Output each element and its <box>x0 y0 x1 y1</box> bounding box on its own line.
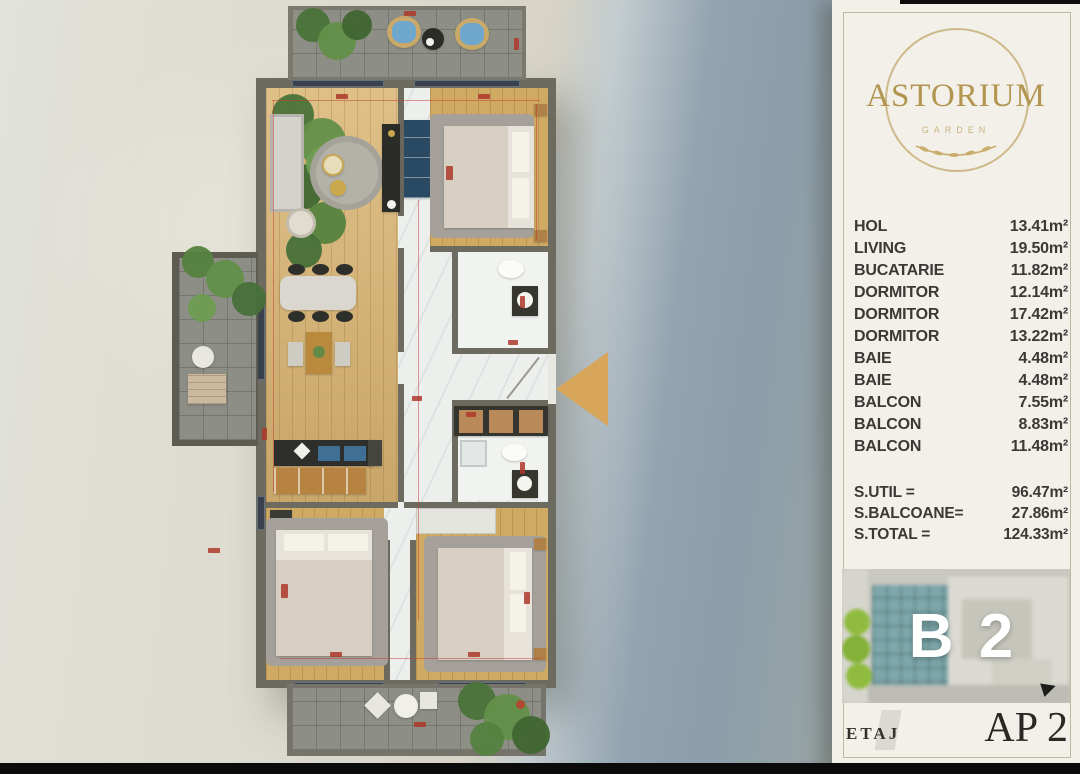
room-label: LIVING <box>854 238 906 260</box>
room-row: DORMITOR17.42m² <box>854 304 1068 326</box>
dimension-label <box>262 428 267 440</box>
room-row: BUCATARIE11.82m² <box>854 260 1068 282</box>
room-label: DORMITOR <box>854 304 939 326</box>
closet-box <box>489 410 513 433</box>
site-plan-thumbnail: B 2 <box>842 569 1070 703</box>
sofa <box>270 114 304 212</box>
room-row: DORMITOR12.14m² <box>854 282 1068 304</box>
kitchen-cabinet-front <box>318 446 340 461</box>
chair-cushion <box>392 21 416 43</box>
room-row: BAIE4.48m² <box>854 370 1068 392</box>
dining-chair <box>312 264 329 275</box>
dimension-label <box>468 652 480 657</box>
total-value: 124.33m² <box>1003 524 1068 545</box>
dining-chair <box>312 311 329 322</box>
dining-chair <box>288 264 305 275</box>
dimension-label <box>336 94 348 99</box>
closet-band <box>416 508 496 534</box>
tv-unit <box>382 124 400 212</box>
room-label: HOL <box>854 216 887 238</box>
kitchen-cabinets <box>274 468 366 494</box>
room-label: BUCATARIE <box>854 260 944 282</box>
pillow <box>512 178 529 218</box>
kitchen-cabinet-front <box>344 446 366 461</box>
total-row: S.UTIL =96.47m² <box>854 482 1068 503</box>
dimension-label <box>524 592 530 604</box>
totals-list: S.UTIL =96.47m² S.BALCOANE=27.86m² S.TOT… <box>854 482 1068 545</box>
room-row: HOL13.41m² <box>854 216 1068 238</box>
dining-chair <box>288 311 305 322</box>
apartment-label: AP 2 <box>984 704 1068 752</box>
balcony-chair <box>420 692 437 709</box>
floorplan-photo-background <box>0 0 832 774</box>
interior-wall <box>398 384 404 502</box>
total-row: S.TOTAL =124.33m² <box>854 524 1068 545</box>
pillow <box>512 132 529 172</box>
room-area: 12.14m² <box>1010 282 1068 304</box>
dimension-line <box>280 658 542 659</box>
closet-box <box>519 410 543 433</box>
tv-unit-decor <box>388 130 395 137</box>
shower <box>460 440 487 467</box>
dimension-label <box>446 166 453 180</box>
dimension-label <box>281 584 288 598</box>
total-label: S.UTIL = <box>854 482 915 503</box>
total-label: S.TOTAL = <box>854 524 930 545</box>
dimension-line <box>418 200 419 620</box>
dimension-label <box>208 548 220 553</box>
room-area: 8.83m² <box>1019 414 1069 436</box>
chair-cushion <box>460 23 484 45</box>
bed-duvet <box>438 548 504 660</box>
total-value: 96.47m² <box>1012 482 1068 503</box>
dimension-label <box>520 462 525 474</box>
lounge-chair <box>188 374 226 404</box>
hall-wardrobe <box>404 120 430 198</box>
interior-wall <box>266 502 398 508</box>
room-label: BALCON <box>854 436 921 458</box>
kitchen-fridge <box>368 440 382 466</box>
kitchen-chair <box>335 342 350 366</box>
entrance-arrow-icon <box>556 352 608 426</box>
dining-chair <box>336 264 353 275</box>
room-row: BALCON11.48m² <box>854 436 1068 458</box>
pillow <box>510 552 526 590</box>
dimension-line <box>536 104 537 240</box>
room-area: 4.48m² <box>1019 370 1069 392</box>
dimension-label <box>330 652 342 657</box>
interior-wall <box>398 248 404 352</box>
floor-label: ETAJ <box>846 724 900 744</box>
unit-code: B 2 <box>842 569 1070 703</box>
room-label: BAIE <box>854 370 891 392</box>
table-plant <box>313 346 325 358</box>
room-area: 19.50m² <box>1010 238 1068 260</box>
pillow <box>328 534 368 551</box>
tree <box>470 722 504 756</box>
bottom-letterbox-bar <box>0 763 1080 774</box>
room-row: DORMITOR13.22m² <box>854 326 1068 348</box>
dimension-line <box>272 100 540 101</box>
room-row: LIVING19.50m² <box>854 238 1068 260</box>
room-label: DORMITOR <box>854 282 939 304</box>
room-area: 17.42m² <box>1010 304 1068 326</box>
screenshot-root: ASTORIUM GARDEN HOL13.41m² LIVING19.50m²… <box>0 0 1080 774</box>
dimension-label <box>514 38 519 50</box>
logo-title: ASTORIUM <box>832 78 1080 115</box>
dimension-label <box>412 396 422 401</box>
info-panel: ASTORIUM GARDEN HOL13.41m² LIVING19.50m²… <box>832 0 1080 774</box>
sink <box>517 476 532 491</box>
room-label: DORMITOR <box>854 326 939 348</box>
room-label: BALCON <box>854 414 921 436</box>
room-area: 13.22m² <box>1010 326 1068 348</box>
coffee-table <box>322 154 344 176</box>
room-area: 11.48m² <box>1011 436 1068 458</box>
top-letterbox-bar <box>900 0 1080 4</box>
room-area: 13.41m² <box>1010 216 1068 238</box>
dining-chair <box>336 311 353 322</box>
tv-unit-lamp <box>387 200 396 209</box>
plant <box>188 294 216 322</box>
toilet <box>498 260 524 278</box>
gold-stool <box>330 180 346 196</box>
total-row: S.BALCOANE=27.86m² <box>854 503 1068 524</box>
room-area: 4.48m² <box>1019 348 1069 370</box>
total-value: 27.86m² <box>1012 503 1068 524</box>
room-area: 11.82m² <box>1011 260 1068 282</box>
dimension-label <box>404 11 416 16</box>
interior-wall <box>410 540 416 680</box>
room-label: BALCON <box>854 392 921 414</box>
dimension-label <box>520 296 525 308</box>
bed-duvet <box>444 126 508 228</box>
window <box>414 80 520 87</box>
logo-subtitle: GARDEN <box>832 125 1080 135</box>
flower <box>516 700 525 709</box>
dimension-label <box>466 412 476 417</box>
dimension-label <box>508 340 518 345</box>
table-decor <box>426 38 434 46</box>
toilet <box>502 444 527 461</box>
round-rug <box>310 136 384 210</box>
balcony-side-table <box>192 346 214 368</box>
laurel-icon <box>908 138 1004 164</box>
room-row: BALCON8.83m² <box>854 414 1068 436</box>
nightstand <box>534 538 546 550</box>
dining-table <box>280 276 356 310</box>
window <box>257 496 265 530</box>
room-area: 7.55m² <box>1019 392 1069 414</box>
window <box>292 80 384 87</box>
room-label: BAIE <box>854 348 891 370</box>
total-label: S.BALCOANE= <box>854 503 963 524</box>
interior-wall <box>452 348 548 354</box>
plant <box>232 282 266 316</box>
dimension-line <box>273 100 274 492</box>
tree <box>512 716 550 754</box>
pillow <box>284 534 324 551</box>
room-row: BALCON7.55m² <box>854 392 1068 414</box>
entry-door-gap <box>548 354 556 404</box>
armchair <box>286 208 316 238</box>
bed-duvet <box>276 560 372 656</box>
room-row: BAIE4.48m² <box>854 348 1068 370</box>
kitchen-chair <box>288 342 303 366</box>
balcony-round-table <box>394 694 418 718</box>
room-list: HOL13.41m² LIVING19.50m² BUCATARIE11.82m… <box>854 216 1068 458</box>
plant <box>342 10 372 40</box>
dimension-label <box>414 722 426 727</box>
dimension-label <box>478 94 490 99</box>
